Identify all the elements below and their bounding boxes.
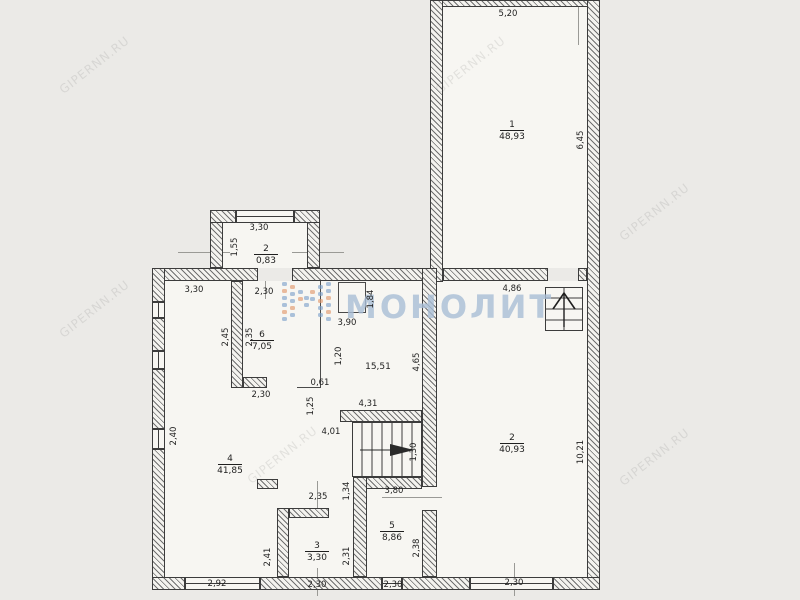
dim-label: 2,41 — [263, 542, 273, 572]
site-watermark: GIPERNN.RU — [57, 33, 133, 96]
wall — [553, 577, 600, 590]
room-label-1: 1 48,93 — [484, 112, 540, 142]
wall — [210, 210, 236, 223]
wall — [422, 510, 437, 577]
wall — [340, 410, 422, 422]
dim-label: 1,30 — [409, 437, 419, 467]
site-watermark: GIPERNN.RU — [617, 425, 693, 488]
dim-label: 4,86 — [497, 284, 527, 294]
dim-label: 2,40 — [169, 421, 179, 451]
dim-label: 1,20 — [334, 341, 344, 371]
dim-label: 4,01 — [316, 427, 346, 437]
floor-plan-scan: МОНОЛИТ GIPERNN.RU GIPERNN.RU GIPERNN.RU… — [0, 0, 800, 600]
window — [236, 210, 294, 223]
dim-label: 2,92 — [202, 579, 232, 589]
wall — [430, 0, 600, 7]
wall — [152, 577, 185, 590]
wall — [578, 268, 587, 281]
room-label-4: 4 41,85 — [202, 446, 258, 476]
dim-label: 2,30 — [378, 580, 408, 590]
site-watermark: GIPERNN.RU — [57, 277, 133, 340]
dim-label: 2,30 — [302, 580, 332, 590]
dim-label: 1,25 — [306, 391, 316, 421]
wall — [152, 318, 165, 351]
room-label-3: 3 3,30 — [289, 533, 345, 563]
room-label-2: 2 40,93 — [484, 425, 540, 455]
dimension-line — [578, 7, 579, 45]
dim-label: 1,55 — [230, 232, 240, 262]
window — [152, 302, 165, 318]
dim-label: 2,31 — [342, 541, 352, 571]
wall — [289, 508, 329, 518]
room-label-hall: 15,51 — [350, 362, 406, 372]
dim-label: 0,61 — [305, 378, 335, 388]
room-label-6: 6 7,05 — [234, 322, 290, 352]
window — [152, 351, 165, 369]
dim-label: 5,20 — [493, 9, 523, 19]
dim-label: 1,34 — [342, 476, 352, 506]
wall — [294, 210, 320, 223]
dim-label: 2,38 — [412, 533, 422, 563]
wall — [243, 377, 267, 388]
wall — [587, 0, 600, 590]
dim-label: 1,84 — [366, 284, 376, 314]
wall — [152, 268, 165, 302]
wall — [152, 268, 258, 281]
wall — [152, 449, 165, 590]
wall — [402, 577, 470, 590]
dim-label: 4,31 — [353, 399, 383, 409]
room-label-porch: 2 0,83 — [238, 236, 294, 266]
dim-label: 3,90 — [332, 318, 362, 328]
dim-label: 4,65 — [412, 347, 422, 377]
wall — [152, 369, 165, 429]
dim-label: 2,35 — [245, 322, 255, 352]
wall — [443, 268, 548, 281]
dim-label: 10,21 — [576, 437, 586, 467]
wall — [277, 508, 289, 577]
dim-label: 2,30 — [499, 578, 529, 588]
dim-label: 3,80 — [379, 486, 409, 496]
dim-label: 2,30 — [246, 390, 276, 400]
dim-label: 2,45 — [221, 322, 231, 352]
dim-label: 2,30 — [249, 287, 279, 297]
dim-label: 3,30 — [179, 285, 209, 295]
site-watermark: GIPERNN.RU — [617, 180, 693, 243]
dimension-line — [382, 497, 442, 498]
wall — [430, 0, 443, 282]
window — [152, 429, 165, 449]
dim-label: 3,30 — [244, 223, 274, 233]
dim-label: 2,35 — [303, 492, 333, 502]
dim-label: 6,45 — [576, 125, 586, 155]
